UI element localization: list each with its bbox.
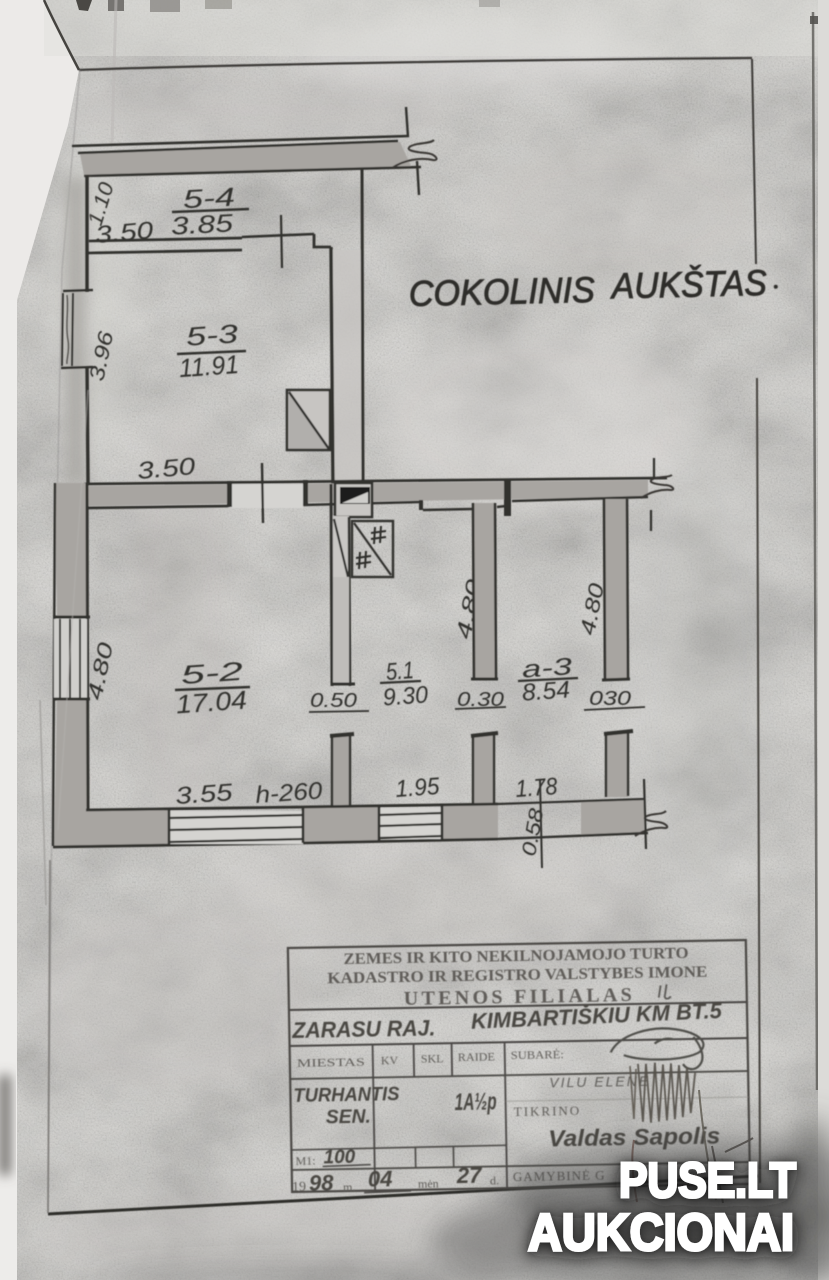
svg-text:KV: KV xyxy=(381,1053,399,1067)
svg-text:TIKRINO: TIKRINO xyxy=(514,1103,582,1119)
svg-text:M1:: M1: xyxy=(295,1154,315,1168)
svg-text:8.54: 8.54 xyxy=(521,676,571,706)
svg-text:1.78: 1.78 xyxy=(515,773,559,803)
svg-text:ZARASU RAJ.: ZARASU RAJ. xyxy=(291,1015,435,1043)
svg-text:98: 98 xyxy=(309,1170,335,1195)
svg-text:AUKCIONAI: AUKCIONAI xyxy=(528,1204,794,1262)
svg-text:3.50: 3.50 xyxy=(136,453,197,485)
svg-text:9.30: 9.30 xyxy=(382,681,429,711)
svg-text:SEN.: SEN. xyxy=(326,1107,371,1129)
svg-text:h-260: h-260 xyxy=(255,777,324,809)
svg-text:MIESTAS: MIESTAS xyxy=(297,1055,365,1070)
svg-text:11.91: 11.91 xyxy=(178,349,240,383)
svg-text:SKL: SKL xyxy=(421,1051,444,1065)
svg-text:27: 27 xyxy=(456,1163,484,1188)
svg-text:m.: m. xyxy=(343,1180,356,1194)
svg-text:TURHANTIS: TURHANTIS xyxy=(293,1084,400,1107)
svg-text:RAIDE: RAIDE xyxy=(458,1049,495,1064)
svg-text:3.50: 3.50 xyxy=(94,217,155,249)
svg-text:1.95: 1.95 xyxy=(395,773,441,803)
svg-text:d.: d. xyxy=(490,1173,499,1187)
svg-text:3.55: 3.55 xyxy=(175,779,235,810)
svg-text:1A½p: 1A½p xyxy=(454,1088,496,1116)
svg-text:SUBARĖ:: SUBARĖ: xyxy=(511,1047,564,1062)
svg-text:3.85: 3.85 xyxy=(170,209,233,240)
svg-text:04: 04 xyxy=(368,1166,393,1191)
svg-text:19: 19 xyxy=(292,1180,306,1195)
svg-text:COKOLINIS: COKOLINIS xyxy=(408,269,595,314)
svg-text:PUSE.LT: PUSE.LT xyxy=(619,1154,796,1208)
svg-text:0.50: 0.50 xyxy=(310,690,357,712)
svg-text:030: 030 xyxy=(589,688,631,710)
svg-text:AUKŠTAS: AUKŠTAS xyxy=(609,262,767,307)
svg-text:mėn: mėn xyxy=(418,1176,439,1190)
svg-text:5-3: 5-3 xyxy=(185,318,240,352)
svg-text:17.04: 17.04 xyxy=(175,685,248,720)
